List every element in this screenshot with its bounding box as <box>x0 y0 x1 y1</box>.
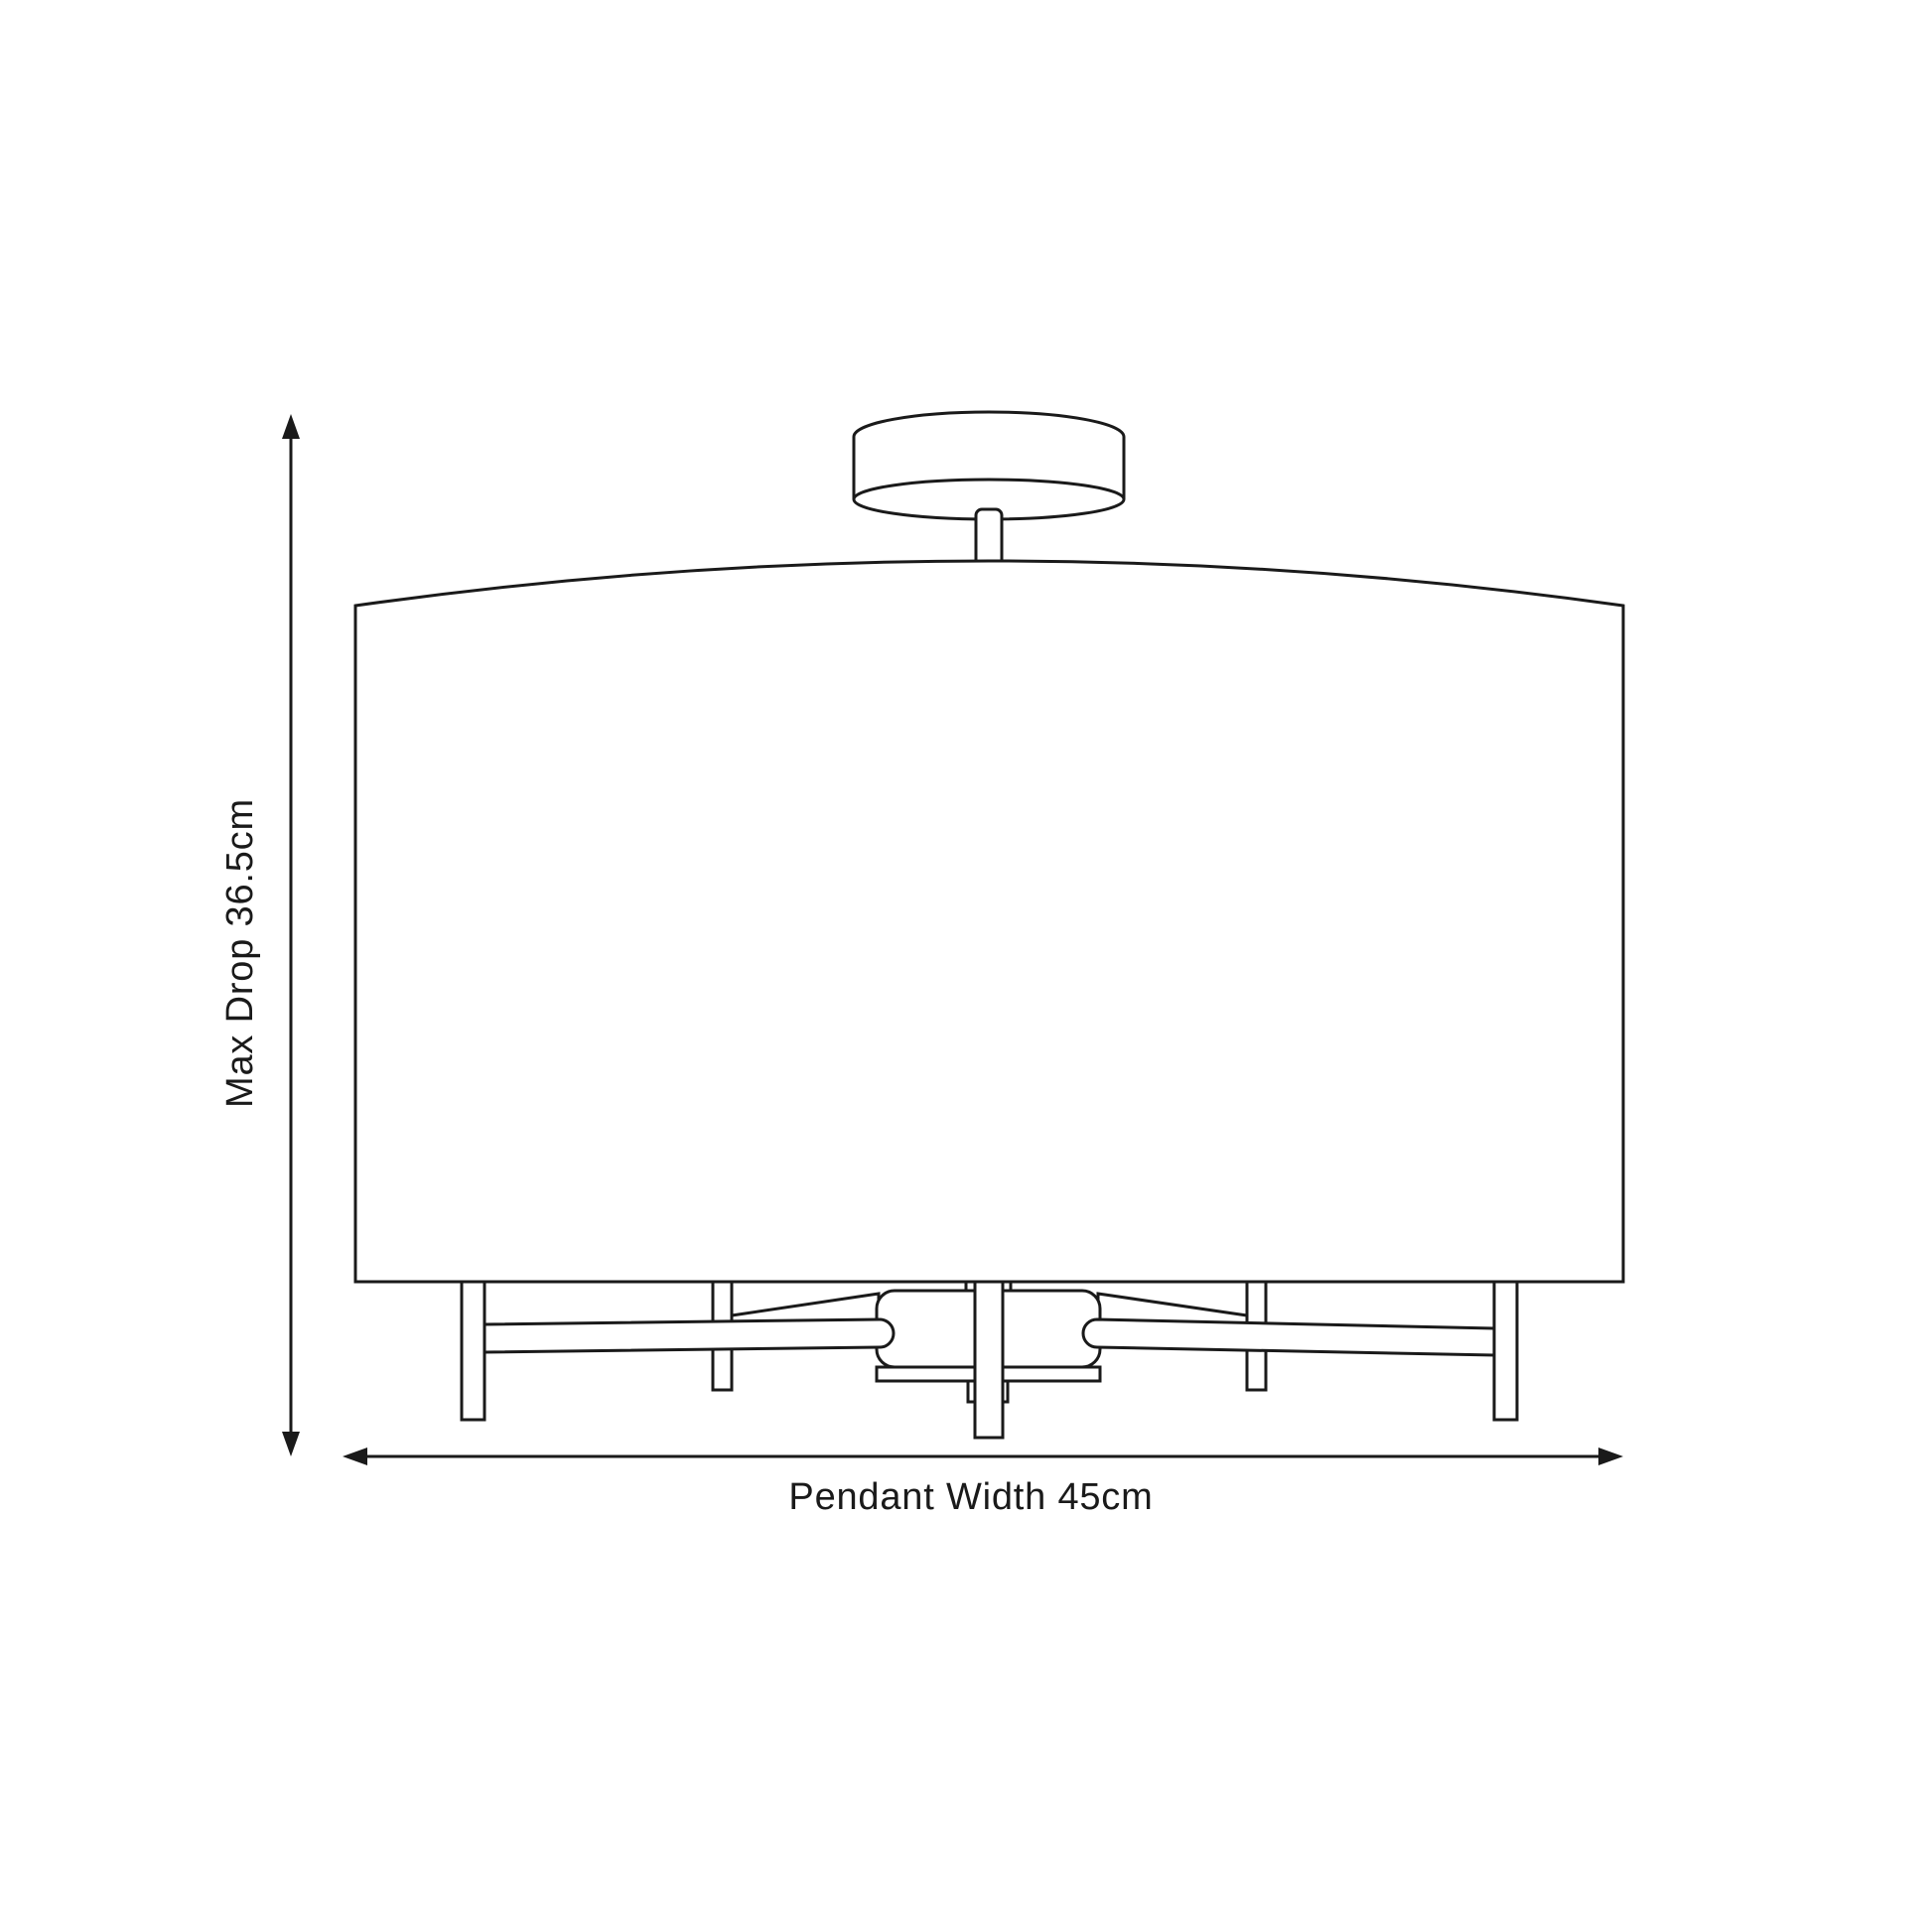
outer-post-right <box>1494 1282 1517 1420</box>
lamp-assembly <box>462 1282 1517 1438</box>
dimension-horizontal <box>343 1448 1623 1465</box>
ceiling-canopy <box>854 412 1124 519</box>
drum-shade <box>355 561 1623 1282</box>
pendant-width-label: Pendant Width 45cm <box>623 1475 1318 1519</box>
diagram-canvas: Max Drop 36.5cm Pendant Width 45cm <box>0 0 1932 1932</box>
arrow-down-icon <box>282 1432 300 1456</box>
stem-lower <box>975 1282 1003 1438</box>
arrow-up-icon <box>282 414 300 439</box>
arrow-right-icon <box>1598 1448 1623 1465</box>
outer-post-left <box>462 1282 484 1420</box>
dimension-vertical <box>282 414 300 1456</box>
canopy-outline <box>854 412 1124 519</box>
arm-tube-right <box>1083 1319 1494 1355</box>
arrow-left-icon <box>343 1448 367 1465</box>
arm-tube-left <box>484 1319 894 1352</box>
max-drop-label: Max Drop 36.5cm <box>218 606 262 1301</box>
pendant-light-line-drawing <box>0 0 1932 1932</box>
